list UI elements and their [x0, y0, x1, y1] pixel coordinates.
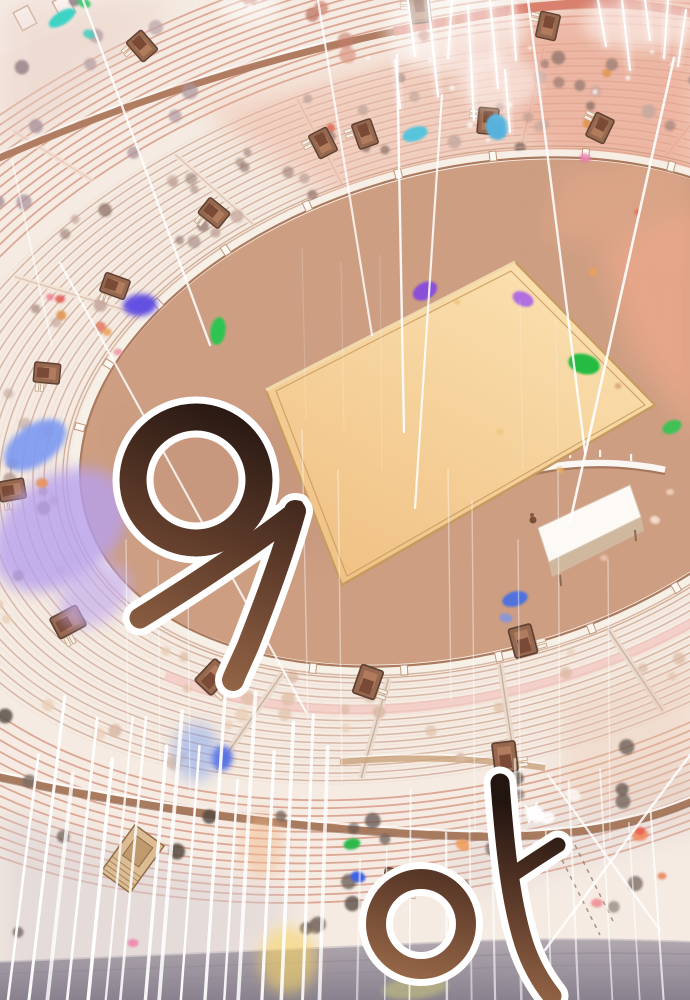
- arena-scene: [0, 0, 690, 1000]
- webtoon-panel: 우아: [0, 0, 690, 1000]
